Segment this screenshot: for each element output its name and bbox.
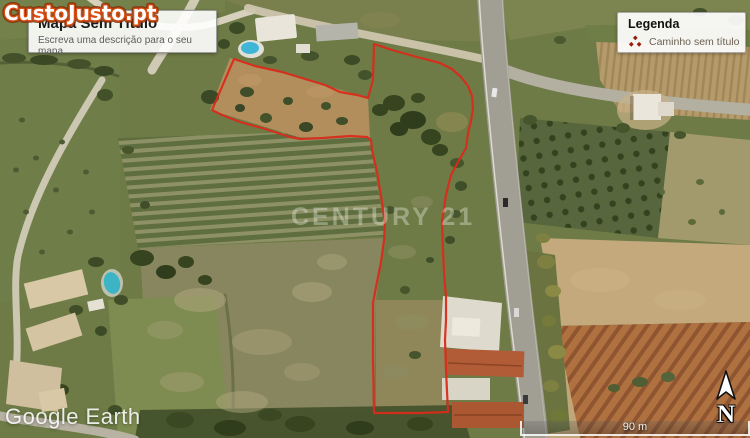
map-screenshot: CENTURY 21 Mapa Sem Título Escreva uma d… [0,0,750,438]
path-dots-icon [628,35,642,48]
map-title-box: Mapa Sem Título Escreva uma descrição pa… [28,10,217,53]
terrain-fields [0,0,750,438]
swimming-pool-top [241,42,259,54]
scale-bar: 90 m [520,421,750,436]
map-canvas[interactable] [0,0,750,438]
map-title[interactable]: Mapa Sem Título [38,15,208,32]
legend-title: Legenda [628,17,745,31]
legend-item-caminho[interactable]: Caminho sem título [628,35,745,48]
google-earth-logo: Google Earth [5,404,141,430]
north-arrow-icon [712,370,740,402]
map-description[interactable]: Escreva uma descrição para o seu mapa. [38,35,208,57]
legend-box: Legenda Caminho sem título [617,12,746,53]
compass: N [706,370,746,425]
scale-label: 90 m [623,421,647,433]
legend-item-label: Caminho sem título [649,36,739,48]
